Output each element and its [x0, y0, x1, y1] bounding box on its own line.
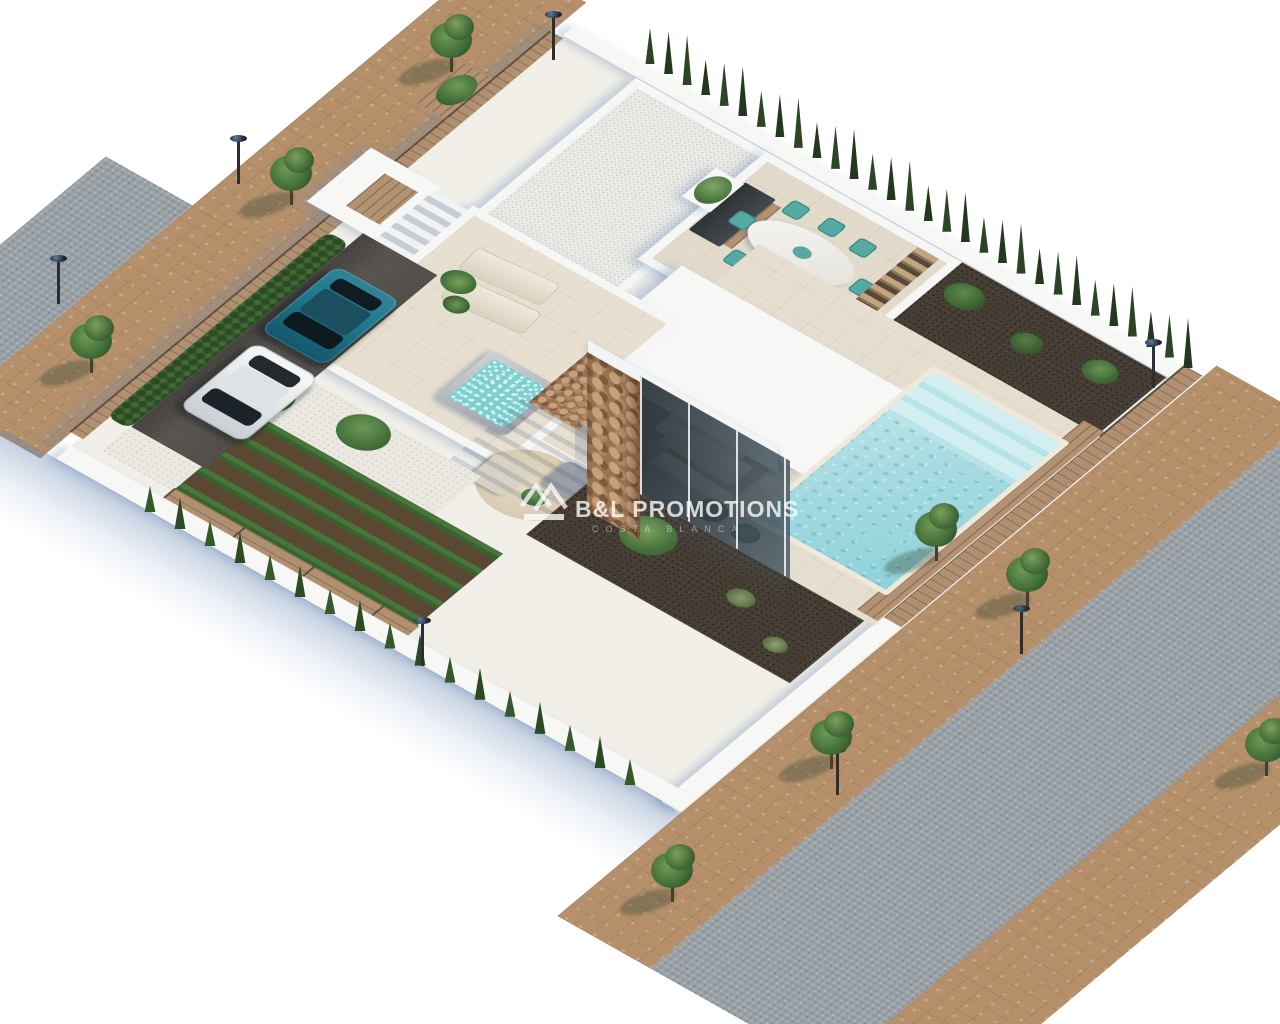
cypress-tree-icon: [976, 217, 991, 253]
cypress-tree-icon: [921, 185, 936, 221]
cypress-tree-icon: [1032, 248, 1047, 284]
cypress-tree-icon: [1143, 311, 1158, 347]
cypress-tree-icon: [828, 126, 843, 169]
cypress-tree-icon: [680, 35, 695, 85]
cypress-tree-icon: [1106, 283, 1121, 326]
cypress-tree-icon: [791, 98, 806, 148]
cypress-tree-icon: [809, 122, 824, 158]
cypress-tree-icon: [643, 28, 658, 64]
cypress-tree-icon: [1162, 315, 1177, 358]
cypress-tree-icon: [1088, 280, 1103, 316]
render-canvas: B&L PROMOTIONS COSTA BLANCA: [0, 0, 1280, 1024]
cypress-tree-icon: [884, 157, 899, 200]
cypress-tree-icon: [958, 192, 973, 242]
cypress-tree-icon: [865, 154, 880, 190]
cypress-tree-icon: [717, 63, 732, 106]
cypress-tree-icon: [698, 59, 713, 95]
lamp-head-icon: [230, 135, 247, 142]
cypress-tree-icon: [1069, 255, 1084, 305]
cypress-tree-icon: [995, 220, 1010, 263]
cypress-tree-icon: [735, 66, 750, 116]
cypress-tree-icon: [1051, 252, 1066, 295]
cypress-tree-icon: [754, 91, 769, 127]
lamp-head-icon: [1145, 339, 1162, 346]
cypress-tree-icon: [1014, 224, 1029, 274]
cypress-tree-icon: [772, 94, 787, 137]
cypress-tree-icon: [902, 161, 917, 211]
cypress-tree-icon: [1181, 318, 1196, 368]
cypress-tree-icon: [1125, 287, 1140, 337]
cypress-tree-icon: [939, 189, 954, 232]
plot-ground: [55, 25, 1201, 813]
cypress-tree-icon: [847, 129, 862, 179]
cypress-tree-icon: [661, 31, 676, 74]
